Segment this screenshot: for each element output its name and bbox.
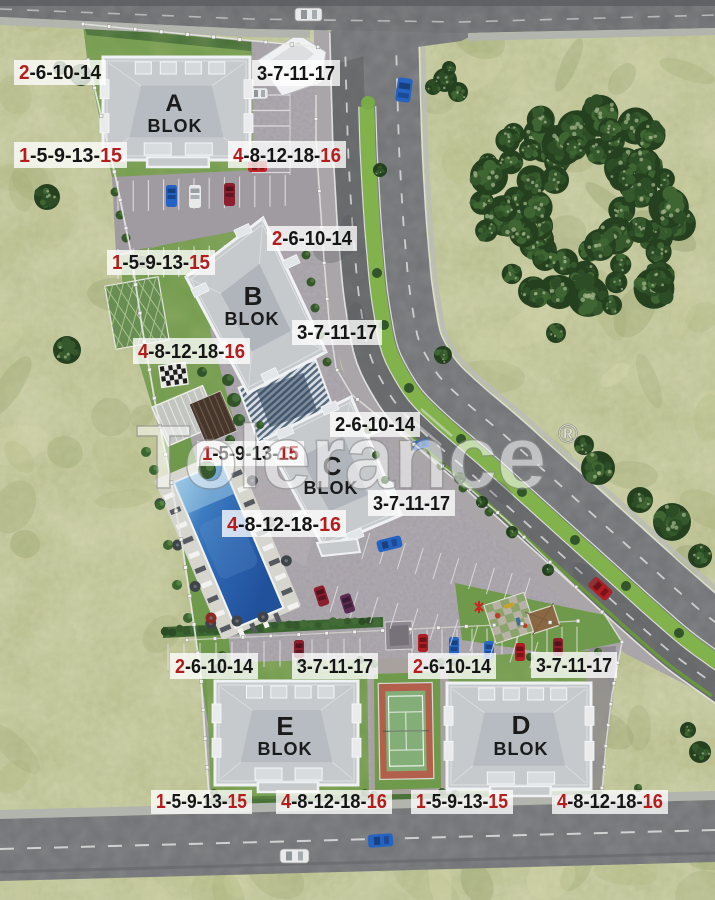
svg-text:2-6-10-14: 2-6-10-14 xyxy=(175,656,254,678)
svg-text:3-7-11-17: 3-7-11-17 xyxy=(536,655,612,677)
svg-text:1-5-9-13-15: 1-5-9-13-15 xyxy=(156,791,247,813)
svg-text:Tolerance: Tolerance xyxy=(136,408,546,508)
svg-text:3-7-11-17: 3-7-11-17 xyxy=(257,63,335,85)
svg-text:1-5-9-13-15: 1-5-9-13-15 xyxy=(416,791,508,813)
svg-text:3-7-11-17: 3-7-11-17 xyxy=(297,322,377,344)
svg-text:BLOK: BLOK xyxy=(225,309,280,329)
svg-text:BLOK: BLOK xyxy=(258,739,313,759)
svg-text:4-8-12-18-16: 4-8-12-18-16 xyxy=(227,514,341,536)
svg-text:4-8-12-18-16: 4-8-12-18-16 xyxy=(138,341,245,363)
svg-text:3-7-11-17: 3-7-11-17 xyxy=(297,656,373,678)
svg-text:B: B xyxy=(244,281,263,311)
svg-text:2-6-10-14: 2-6-10-14 xyxy=(19,62,102,84)
svg-text:4-8-12-18-16: 4-8-12-18-16 xyxy=(233,145,341,167)
svg-text:4-8-12-18-16: 4-8-12-18-16 xyxy=(557,791,663,813)
svg-text:BLOK: BLOK xyxy=(148,116,203,136)
svg-text:1-5-9-13-15: 1-5-9-13-15 xyxy=(112,252,210,274)
svg-text:A: A xyxy=(165,90,182,117)
svg-text:BLOK: BLOK xyxy=(494,739,549,759)
svg-text:2-6-10-14: 2-6-10-14 xyxy=(413,656,492,678)
svg-text:4-8-12-18-16: 4-8-12-18-16 xyxy=(281,791,387,813)
svg-text:E: E xyxy=(276,711,293,741)
svg-text:D: D xyxy=(512,710,531,740)
svg-text:2-6-10-14: 2-6-10-14 xyxy=(272,228,353,250)
svg-text:1-5-9-13-15: 1-5-9-13-15 xyxy=(19,145,122,167)
svg-text:®: ® xyxy=(558,419,578,449)
